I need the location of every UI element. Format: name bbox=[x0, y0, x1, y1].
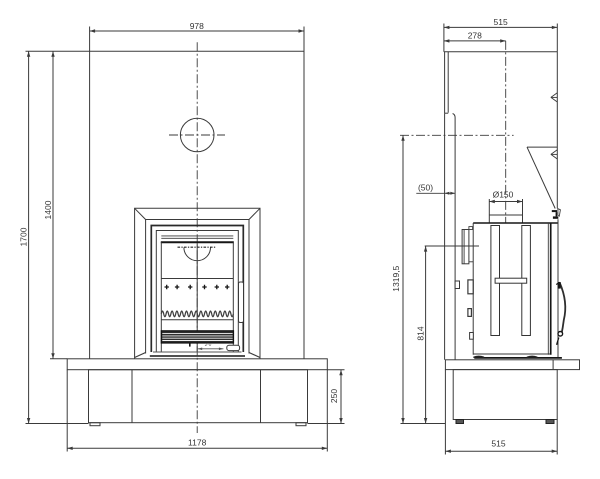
svg-text:515: 515 bbox=[494, 17, 508, 27]
svg-text:1178: 1178 bbox=[188, 438, 207, 448]
svg-text:Ø150: Ø150 bbox=[493, 190, 514, 200]
svg-text:250: 250 bbox=[329, 389, 339, 403]
svg-text:978: 978 bbox=[190, 21, 204, 31]
svg-text:1400: 1400 bbox=[43, 200, 53, 219]
svg-text:(50): (50) bbox=[418, 182, 433, 192]
svg-text:1319,5: 1319,5 bbox=[391, 265, 401, 291]
svg-text:515: 515 bbox=[491, 438, 505, 448]
svg-text:2-0: 2-0 bbox=[205, 342, 212, 347]
svg-text:814: 814 bbox=[416, 326, 426, 340]
svg-text:1700: 1700 bbox=[19, 227, 29, 246]
svg-text:278: 278 bbox=[468, 31, 482, 41]
